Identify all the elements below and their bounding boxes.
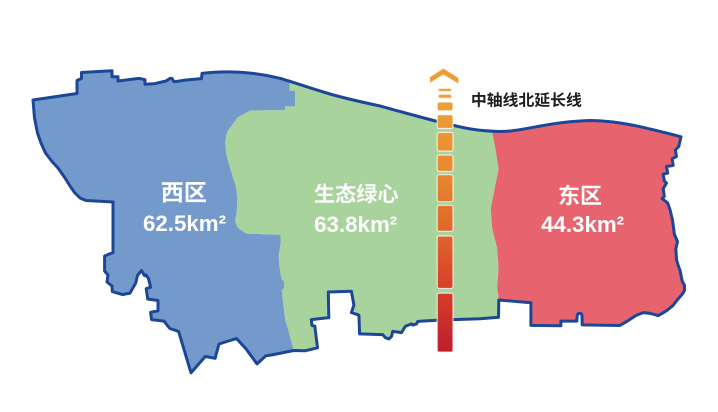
svg-text:62.5km²: 62.5km² [143,211,226,236]
svg-text:44.3km²: 44.3km² [541,212,624,237]
svg-text:63.8km²: 63.8km² [314,212,397,237]
